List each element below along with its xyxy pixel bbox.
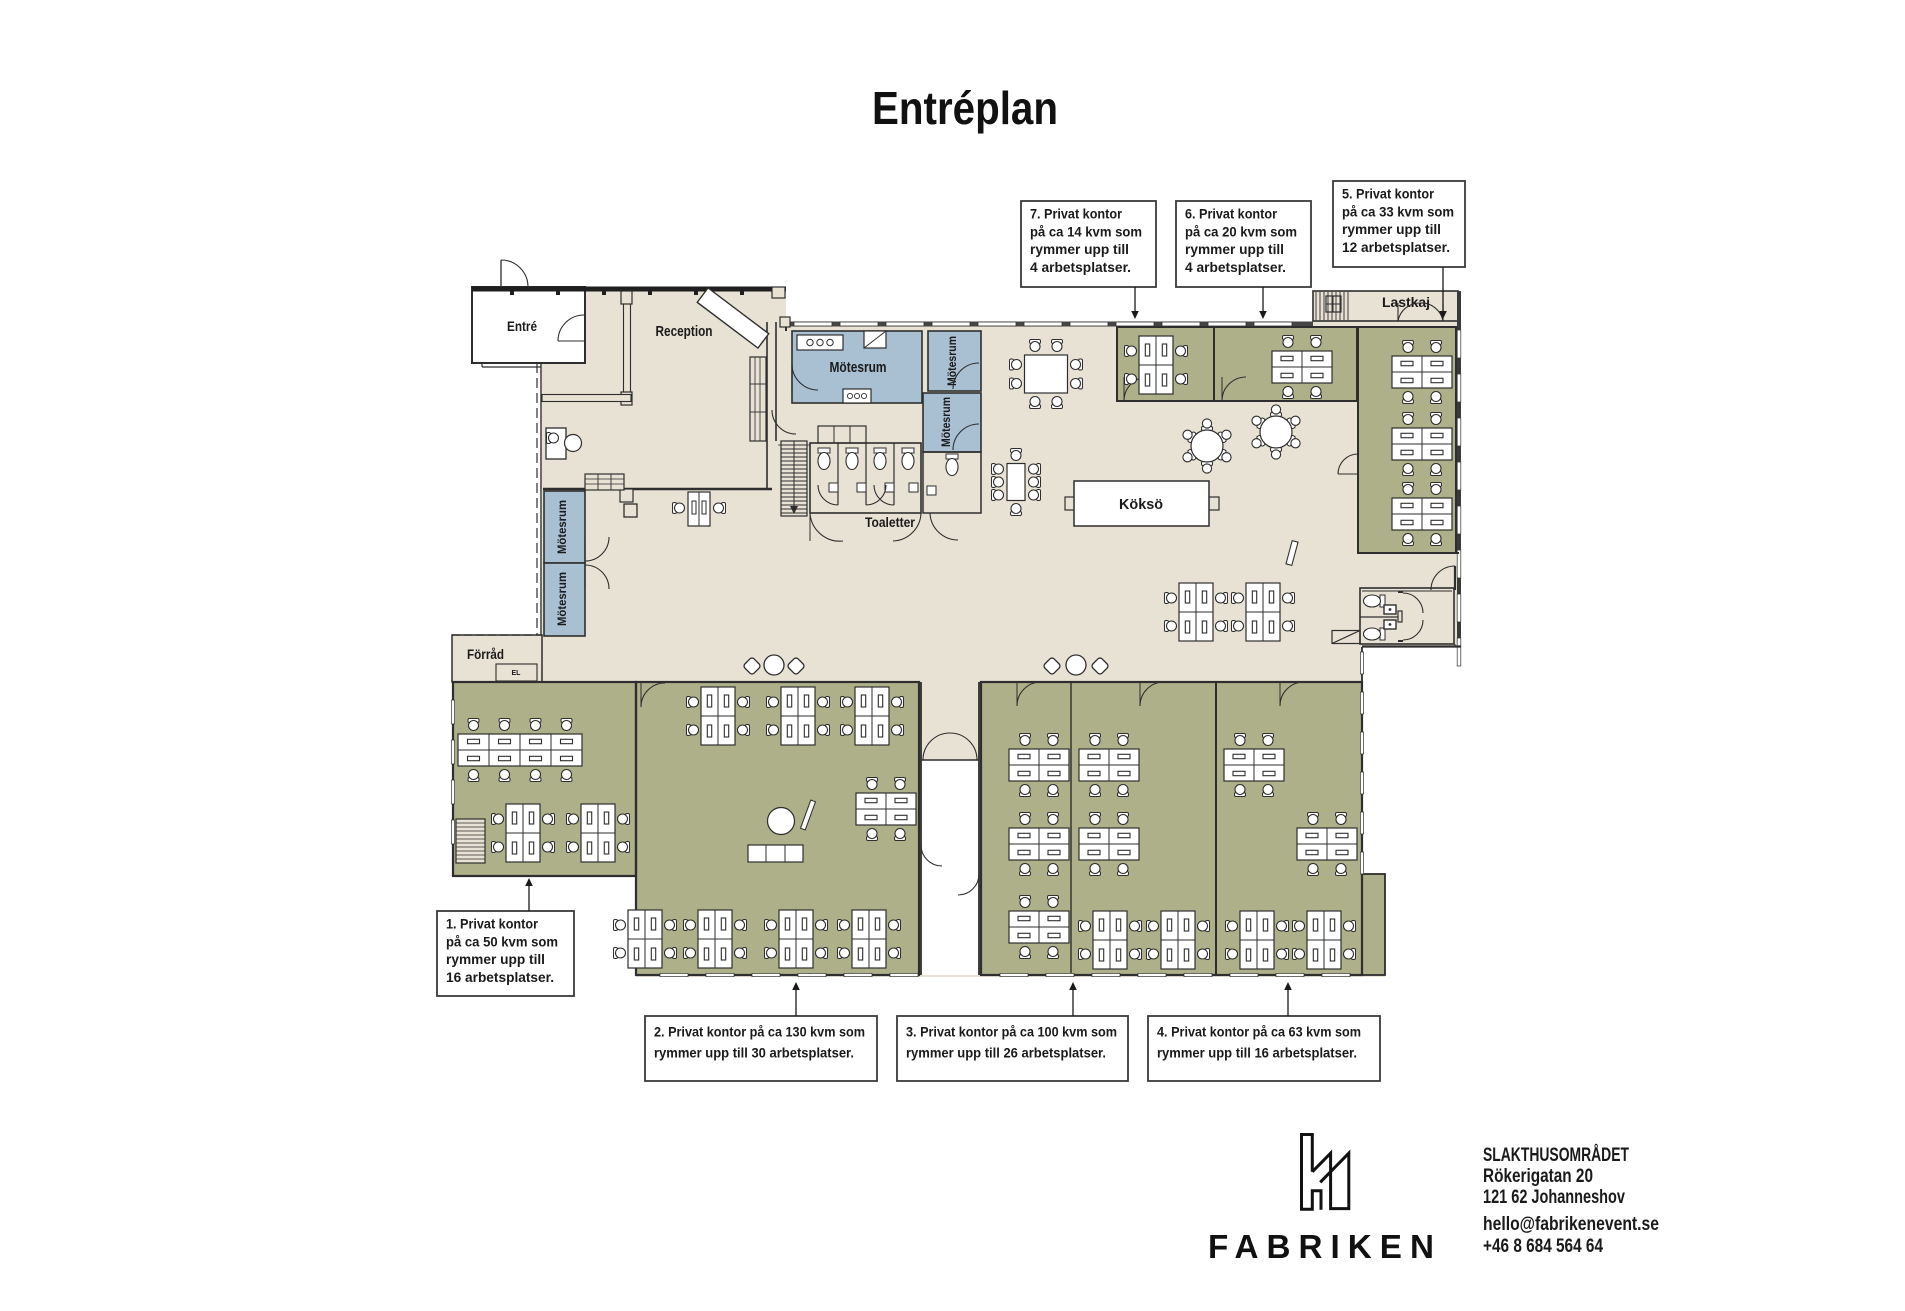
svg-text:på ca 33 kvm som: på ca 33 kvm som — [1342, 203, 1454, 219]
svg-text:Mötesrum: Mötesrum — [830, 359, 887, 376]
svg-text:Rökerigatan 20: Rökerigatan 20 — [1483, 1166, 1593, 1187]
svg-text:16 arbetsplatser.: 16 arbetsplatser. — [446, 969, 554, 985]
svg-text:4 arbetsplatser.: 4 arbetsplatser. — [1185, 259, 1286, 275]
svg-text:Toaletter: Toaletter — [865, 515, 916, 530]
svg-text:EL: EL — [512, 670, 522, 677]
svg-text:3. Privat kontor på ca 100 kvm: 3. Privat kontor på ca 100 kvm som — [906, 1024, 1117, 1040]
svg-text:1. Privat kontor: 1. Privat kontor — [446, 916, 538, 932]
svg-text:Mötesrum: Mötesrum — [555, 572, 569, 626]
svg-text:5. Privat kontor: 5. Privat kontor — [1342, 186, 1434, 202]
svg-text:Entré: Entré — [507, 319, 537, 334]
svg-text:rymmer upp till 26 arbetsplats: rymmer upp till 26 arbetsplatser. — [906, 1045, 1106, 1061]
svg-text:på ca 50 kvm som: på ca 50 kvm som — [446, 933, 558, 949]
svg-text:Mötesrum: Mötesrum — [947, 336, 959, 386]
svg-text:rymmer upp till: rymmer upp till — [446, 951, 545, 967]
svg-text:rymmer upp till 16 arbetsplats: rymmer upp till 16 arbetsplatser. — [1157, 1045, 1357, 1061]
svg-text:FABRIKEN: FABRIKEN — [1208, 1228, 1442, 1265]
svg-text:SLAKTHUSOMRÅDET: SLAKTHUSOMRÅDET — [1483, 1145, 1629, 1166]
svg-text:på ca 20 kvm som: på ca 20 kvm som — [1185, 223, 1297, 239]
svg-text:121 62 Johanneshov: 121 62 Johanneshov — [1483, 1187, 1625, 1208]
svg-text:rymmer upp till: rymmer upp till — [1185, 241, 1284, 257]
svg-text:12 arbetsplatser.: 12 arbetsplatser. — [1342, 239, 1450, 255]
svg-text:rymmer upp till: rymmer upp till — [1342, 221, 1441, 237]
svg-text:Entréplan: Entréplan — [872, 82, 1058, 134]
svg-text:2. Privat kontor på ca 130 kvm: 2. Privat kontor på ca 130 kvm som — [654, 1024, 865, 1040]
svg-text:+46 8 684 564 64: +46 8 684 564 64 — [1483, 1236, 1603, 1257]
svg-text:på ca 14 kvm som: på ca 14 kvm som — [1030, 223, 1142, 239]
svg-text:7. Privat kontor: 7. Privat kontor — [1030, 206, 1122, 222]
svg-text:4. Privat kontor på ca 63 kvm: 4. Privat kontor på ca 63 kvm som — [1157, 1024, 1361, 1040]
svg-text:Mötesrum: Mötesrum — [941, 397, 953, 447]
svg-text:Köksö: Köksö — [1119, 496, 1163, 513]
svg-text:rymmer upp till 30 arbetsplats: rymmer upp till 30 arbetsplatser. — [654, 1045, 854, 1061]
svg-text:Reception: Reception — [656, 323, 713, 340]
svg-text:4 arbetsplatser.: 4 arbetsplatser. — [1030, 259, 1131, 275]
svg-text:rymmer upp till: rymmer upp till — [1030, 241, 1129, 257]
svg-text:6. Privat kontor: 6. Privat kontor — [1185, 206, 1277, 222]
svg-text:hello@fabrikenevent.se: hello@fabrikenevent.se — [1483, 1214, 1659, 1235]
svg-text:Förråd: Förråd — [467, 647, 504, 662]
svg-text:Mötesrum: Mötesrum — [555, 500, 569, 554]
